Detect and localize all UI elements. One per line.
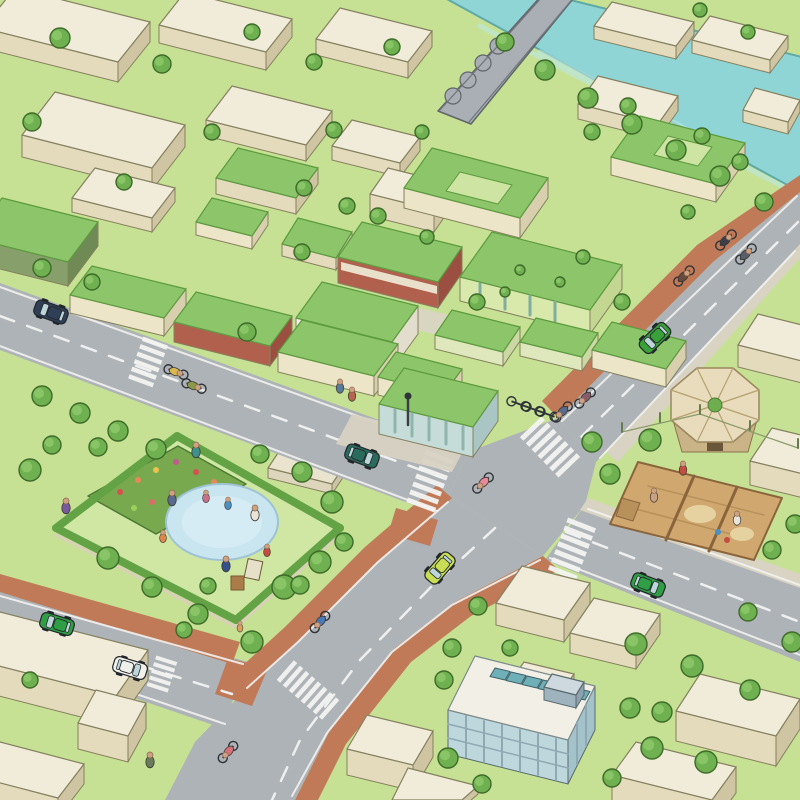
tree	[694, 128, 710, 144]
person	[650, 488, 658, 502]
tree	[741, 25, 755, 39]
tree	[578, 88, 598, 108]
flower	[135, 477, 141, 483]
tree	[116, 174, 132, 190]
tree	[19, 459, 41, 481]
eco-city-illustration: Isometric illustration of a green eco-ci…	[0, 0, 800, 800]
tree	[108, 421, 128, 441]
person	[336, 379, 344, 393]
tree	[435, 671, 453, 689]
person	[146, 752, 154, 768]
tree	[710, 166, 730, 186]
tree	[204, 124, 220, 140]
tree	[23, 113, 41, 131]
sand-patch	[684, 505, 716, 523]
tree	[620, 98, 636, 114]
flower	[149, 499, 155, 505]
person-child	[225, 497, 232, 510]
toy	[724, 537, 730, 543]
tree	[43, 436, 61, 454]
city-scene-canvas	[0, 0, 800, 800]
tree	[291, 576, 309, 594]
tree	[241, 631, 263, 653]
tree	[89, 438, 107, 456]
tree	[438, 748, 458, 768]
tree	[97, 547, 119, 569]
tree	[693, 3, 707, 17]
tree	[473, 775, 491, 793]
tree	[622, 114, 642, 134]
flower	[131, 505, 137, 511]
tree	[326, 122, 342, 138]
tree	[200, 578, 216, 594]
sand-patch	[730, 527, 754, 541]
tree	[188, 604, 208, 624]
flower	[173, 459, 179, 465]
tree	[153, 55, 171, 73]
tree	[681, 205, 695, 219]
tree	[584, 124, 600, 140]
tree	[469, 597, 487, 615]
tree	[639, 429, 661, 451]
toy	[715, 529, 721, 535]
tree	[496, 33, 514, 51]
tree	[84, 274, 100, 290]
street-lamp-head	[405, 393, 412, 400]
tree	[443, 639, 461, 657]
pavilion-green-center	[708, 398, 722, 412]
person-toddler	[237, 621, 243, 632]
tree	[666, 140, 686, 160]
person	[251, 505, 259, 521]
person	[62, 498, 70, 514]
tree	[335, 533, 353, 551]
tree	[695, 751, 717, 773]
tree	[22, 672, 38, 688]
tree	[681, 655, 703, 677]
crate	[231, 576, 244, 590]
tree	[384, 39, 400, 55]
tree	[176, 622, 192, 638]
tree	[732, 154, 748, 170]
tree	[415, 125, 429, 139]
tree	[782, 632, 800, 652]
tree	[142, 577, 162, 597]
flower	[117, 489, 123, 495]
tree	[251, 445, 269, 463]
tree	[502, 640, 518, 656]
tree	[321, 491, 343, 513]
tree	[739, 603, 757, 621]
tree	[33, 259, 51, 277]
tree	[620, 698, 640, 718]
person	[679, 461, 687, 475]
tree	[244, 24, 260, 40]
person	[222, 556, 230, 572]
tree	[755, 193, 773, 211]
tree	[740, 680, 760, 700]
person	[168, 490, 176, 506]
tree	[50, 28, 70, 48]
tree	[641, 737, 663, 759]
tree	[576, 250, 590, 264]
person-child	[160, 530, 167, 543]
splash-pond-inner	[182, 496, 262, 548]
roof-shrub	[555, 277, 565, 287]
tree	[309, 551, 331, 573]
tree	[786, 515, 800, 533]
tree	[32, 386, 52, 406]
tree	[238, 323, 256, 341]
person-child	[203, 490, 210, 503]
person	[348, 387, 356, 401]
tree	[469, 294, 485, 310]
tree	[603, 769, 621, 787]
flower	[193, 469, 199, 475]
tree	[306, 54, 322, 70]
tree	[146, 439, 166, 459]
tree	[296, 180, 312, 196]
tree	[339, 198, 355, 214]
tree	[763, 541, 781, 559]
person	[192, 442, 200, 458]
person	[733, 511, 741, 525]
tree	[614, 294, 630, 310]
roof-shrub	[515, 265, 525, 275]
tree	[70, 403, 90, 423]
tree	[582, 432, 602, 452]
person-child	[264, 544, 271, 557]
tree	[420, 230, 434, 244]
roof-shrub	[500, 287, 510, 297]
tree	[600, 464, 620, 484]
tree	[292, 462, 312, 482]
tree	[535, 60, 555, 80]
tree	[370, 208, 386, 224]
tree	[294, 244, 310, 260]
easel-sign	[244, 559, 263, 581]
tree	[625, 633, 647, 655]
tree	[652, 702, 672, 722]
flower	[153, 467, 159, 473]
